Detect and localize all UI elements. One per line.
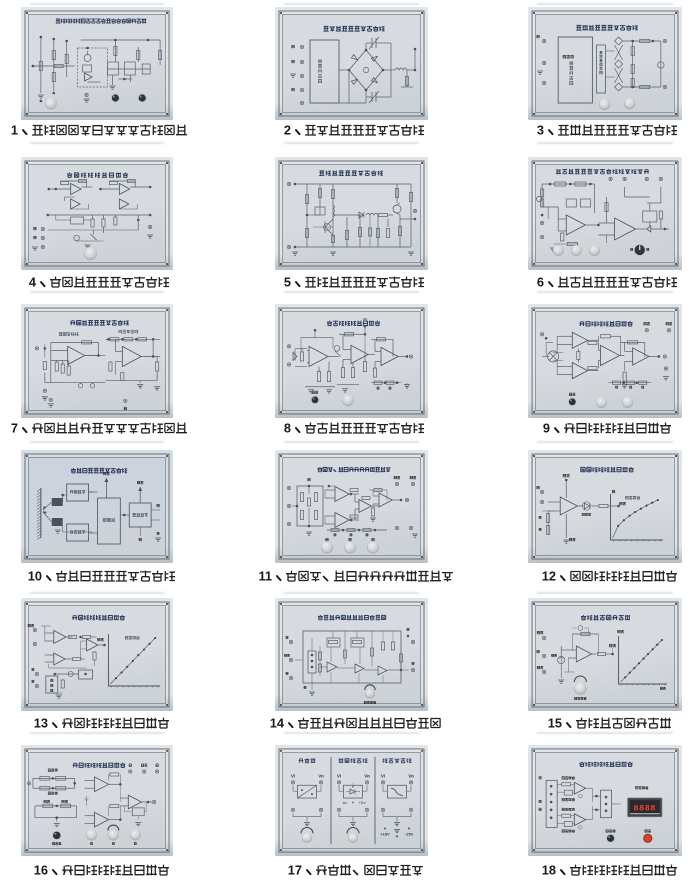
svg-text:16: 16: [33, 864, 47, 878]
svg-text:8888: 8888: [633, 804, 656, 814]
svg-text:Vi: Vi: [381, 773, 385, 778]
svg-text:Vo: Vo: [364, 773, 370, 778]
svg-text:6: 6: [537, 276, 544, 290]
svg-text:+15V: +15V: [380, 831, 390, 836]
svg-text:5: 5: [283, 276, 290, 290]
svg-text:Vo: Vo: [318, 773, 324, 778]
svg-text:11: 11: [258, 570, 272, 584]
svg-text:Δv: Δv: [343, 800, 348, 805]
svg-text:9: 9: [543, 422, 550, 436]
svg-text:2: 2: [283, 124, 290, 138]
svg-text:10: 10: [27, 570, 41, 584]
svg-text:7: 7: [11, 422, 18, 436]
svg-text:12: 12: [541, 570, 555, 584]
svg-text:+Dv: +Dv: [358, 800, 365, 805]
svg-text:Vi: Vi: [291, 773, 295, 778]
svg-text:14: 14: [270, 717, 285, 731]
svg-text:8: 8: [283, 422, 290, 436]
svg-text:13: 13: [33, 717, 47, 731]
svg-text:-15V: -15V: [405, 831, 414, 836]
svg-text:18: 18: [541, 864, 555, 878]
svg-text:Vi: Vi: [337, 773, 341, 778]
svg-text:3: 3: [537, 124, 544, 138]
svg-text:15: 15: [547, 717, 561, 731]
svg-text:Vo: Vo: [408, 773, 414, 778]
svg-text:1: 1: [11, 124, 18, 138]
svg-text:17: 17: [288, 864, 302, 878]
svg-text:4: 4: [29, 276, 37, 290]
